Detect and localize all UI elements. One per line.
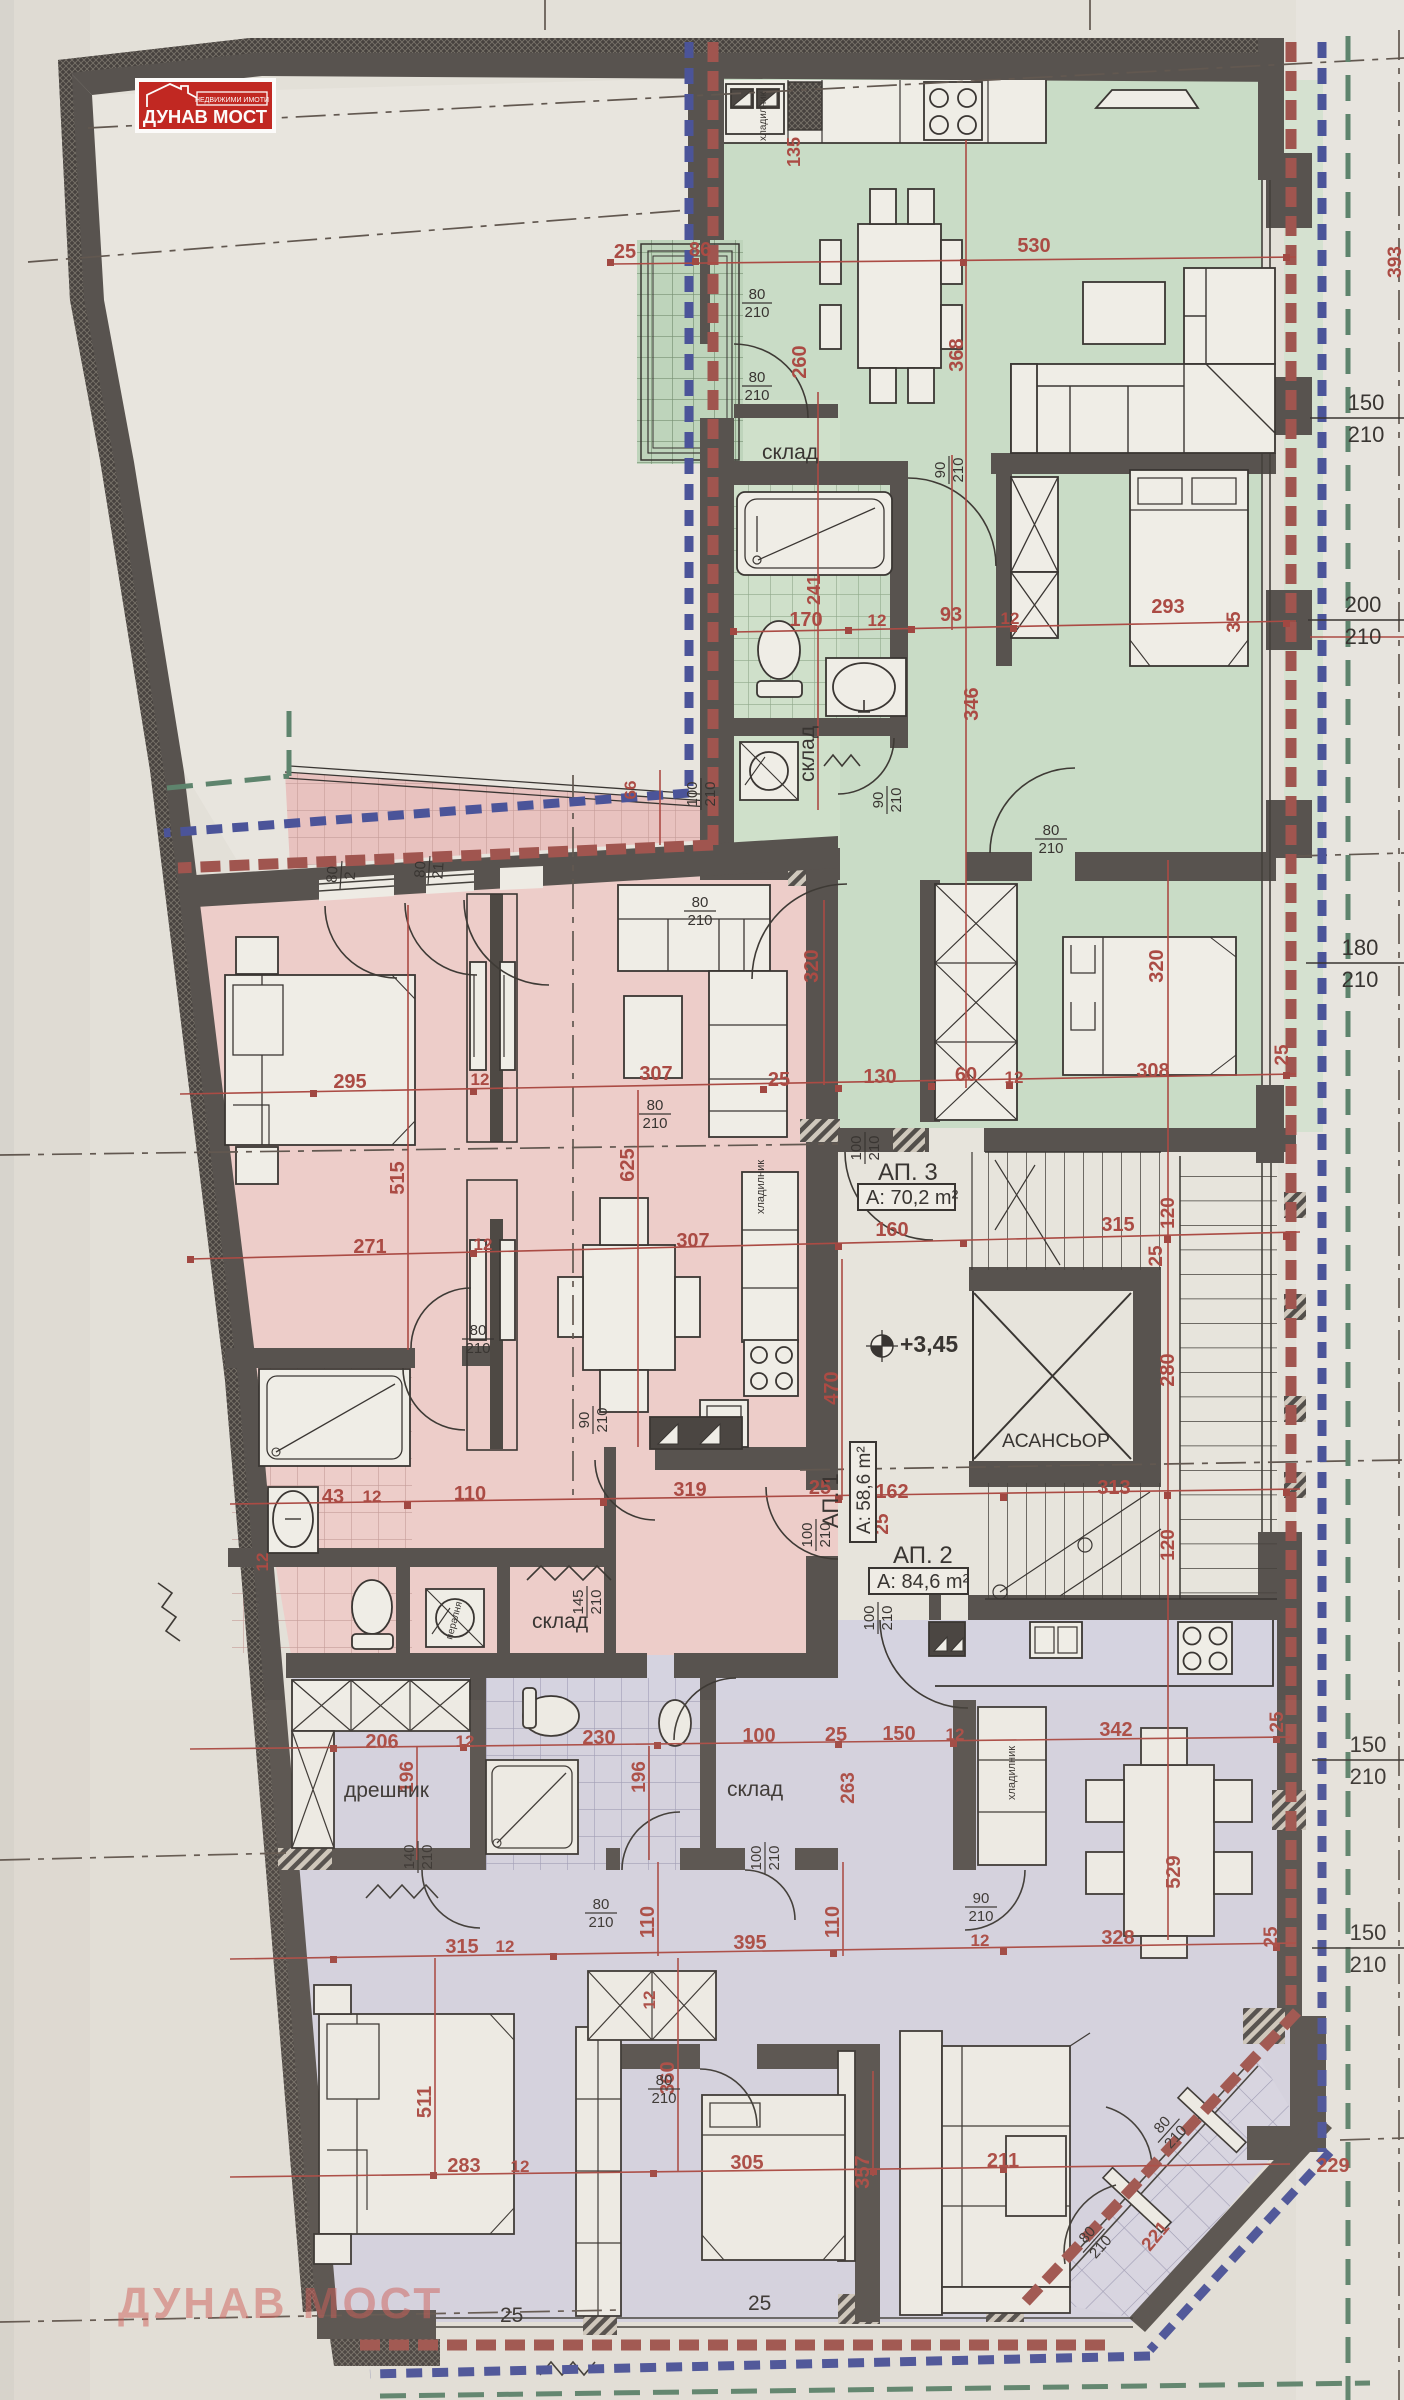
svg-text:ДУНАВ МОСТ: ДУНАВ МОСТ (118, 2279, 443, 2328)
